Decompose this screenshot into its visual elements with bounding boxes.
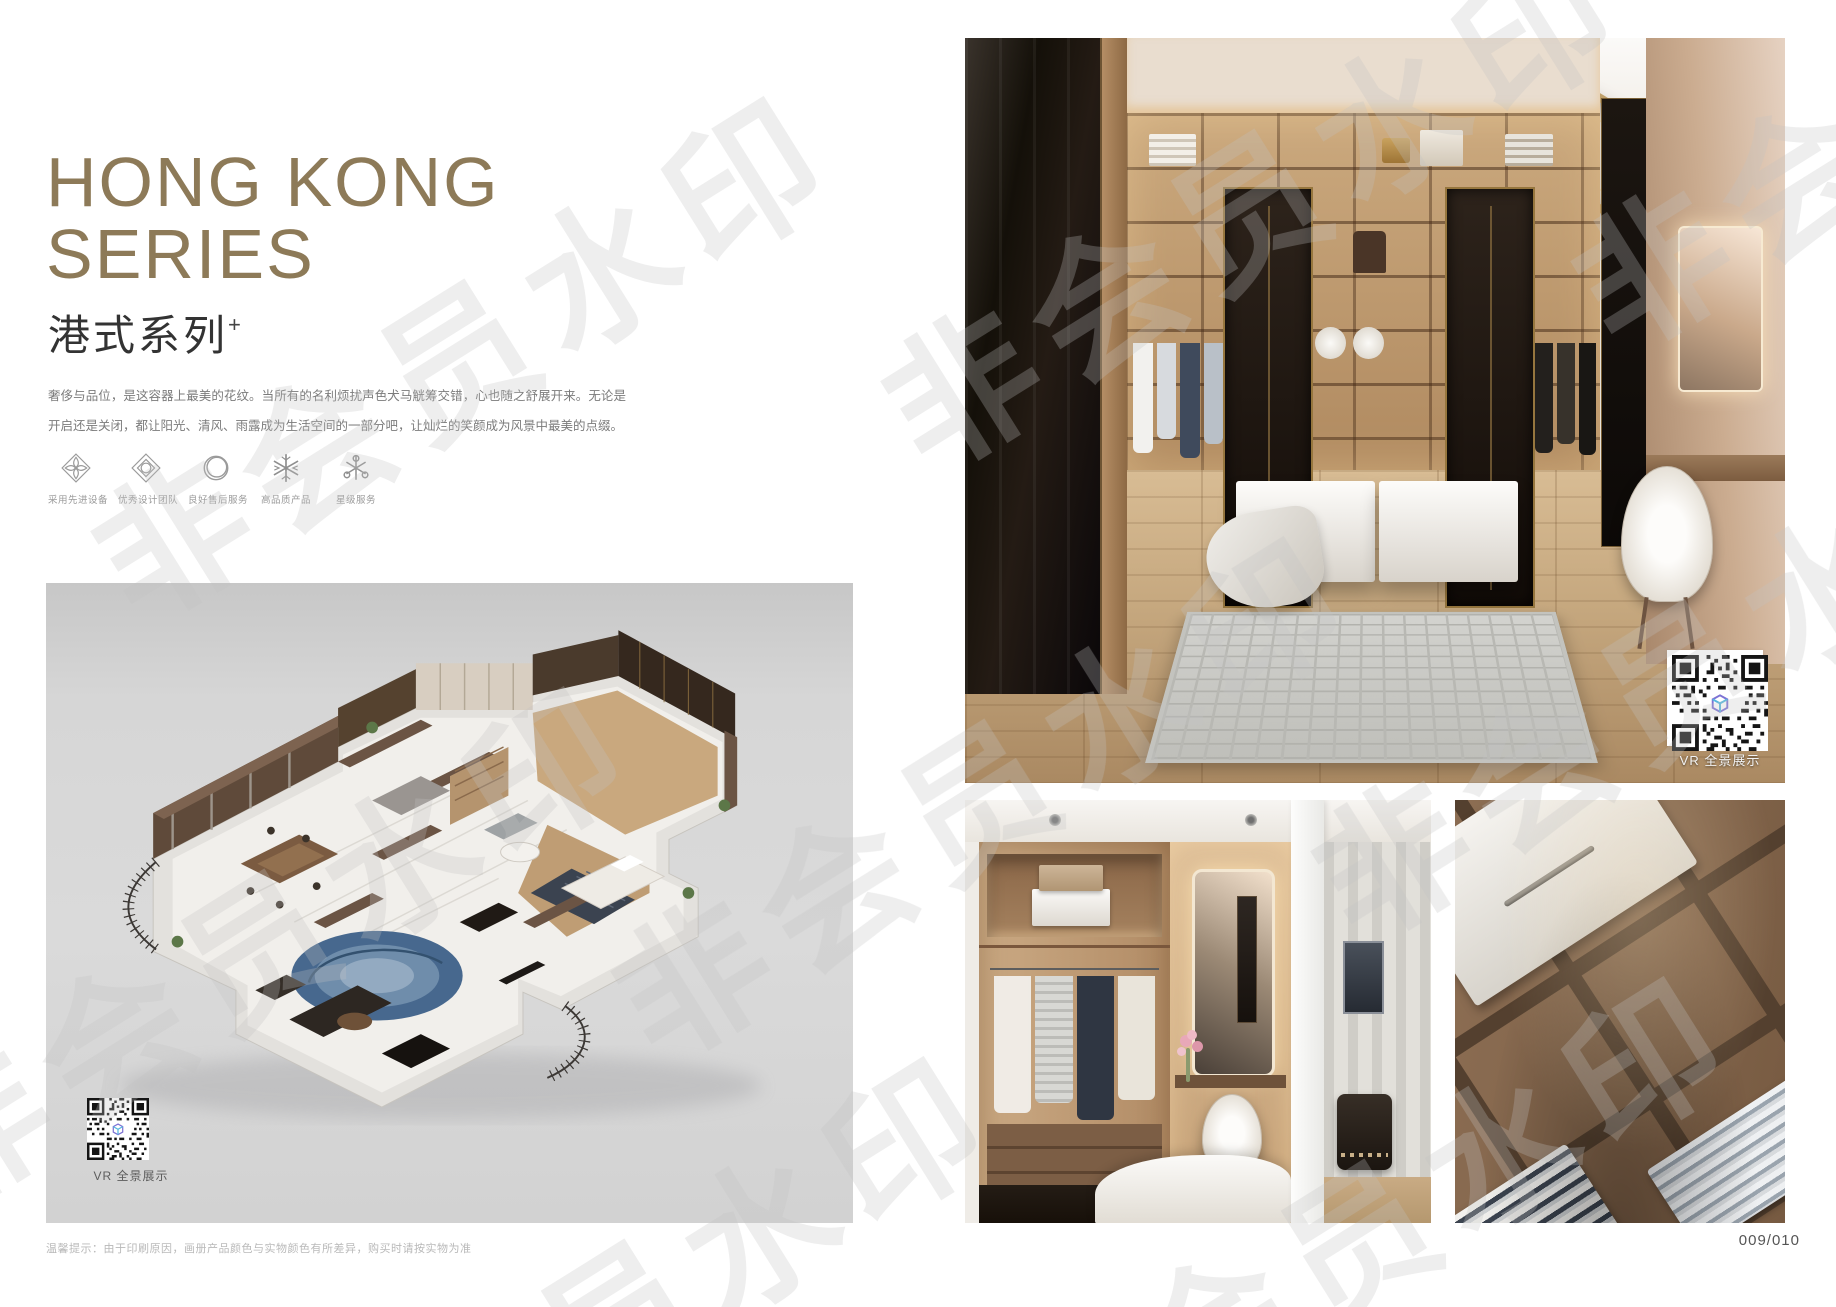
chair-back — [1621, 466, 1713, 602]
glass-door-wardrobe — [965, 38, 1102, 694]
feature-list: 采用先进设备 优秀设计团队 良好售后服务 高品质产品 — [48, 452, 388, 506]
hanging-clothes — [994, 976, 1154, 1121]
soffit-light — [1125, 38, 1601, 113]
storage-box — [1039, 865, 1102, 890]
vanity-mirror — [1678, 226, 1763, 393]
page-title: HONG KONG SERIES — [46, 146, 500, 290]
feature-label: 良好售后服务 — [188, 492, 244, 506]
photo-qr-code — [1667, 650, 1763, 746]
hanging-clothes-dark — [1535, 343, 1597, 462]
flower-vase — [1168, 1029, 1209, 1086]
wall-art — [1343, 941, 1383, 1014]
feature-label: 星级服务 — [328, 492, 384, 506]
ornament-diamond-icon — [130, 452, 162, 484]
floorplan-vr-label: VR 全景展示 — [76, 1167, 186, 1184]
ring-icon — [200, 452, 232, 484]
folded-clothes-stack — [1149, 134, 1197, 166]
page-number: 009/010 — [1739, 1232, 1800, 1249]
wood-floor — [1324, 1177, 1431, 1223]
white-chair — [1621, 466, 1711, 652]
page-subtitle: 港式系列+ — [48, 302, 244, 363]
hat-box — [1353, 327, 1384, 359]
feature-label: 优秀设计团队 — [118, 492, 174, 506]
white-pillar — [1291, 800, 1324, 1223]
floorplan-panel: VR 全景展示 — [46, 583, 853, 1223]
hanging-rod — [990, 968, 1158, 970]
ottoman-bed — [1379, 481, 1518, 582]
feature-star-service: 星级服务 — [328, 452, 384, 506]
ceiling — [965, 800, 1431, 842]
spotlight — [1049, 814, 1061, 826]
feature-after-sales: 良好售后服务 — [188, 452, 244, 506]
series-description: 奢侈与品位，是这容器上最美的花纹。当所有的名利烦扰声色犬马觥筹交错，心也随之舒展… — [48, 381, 626, 441]
feature-quality: 高品质产品 — [258, 452, 314, 506]
chair-leg — [1684, 597, 1695, 649]
footer-disclaimer: 温馨提示：由于印刷原因，画册产品颜色与实物颜色有所差异，购买时请按实物为准 — [46, 1240, 472, 1256]
spotlight — [1245, 814, 1257, 826]
storage-box — [1032, 889, 1109, 926]
hanging-clothes-light — [1133, 343, 1223, 462]
main-closet-photo: VR 全景展示 — [965, 38, 1785, 783]
gold-decor-box — [1382, 138, 1411, 163]
feature-label: 高品质产品 — [258, 492, 314, 506]
dressing-area-photo — [965, 800, 1431, 1223]
wood-pillar — [1102, 38, 1127, 694]
adjacent-room-view — [1324, 842, 1431, 1223]
floorplan-qr-code — [84, 1095, 152, 1163]
catalog-page: HONG KONG SERIES 港式系列+ 奢侈与品位，是这容器上最美的花纹。… — [0, 0, 1836, 1307]
folded-clothes-stack — [1505, 134, 1553, 166]
feature-design-team: 优秀设计团队 — [118, 452, 174, 506]
chair-leg — [1637, 597, 1648, 649]
subtitle-text: 港式系列 — [48, 312, 228, 359]
stud-trim — [1341, 1153, 1388, 1157]
feature-label: 采用先进设备 — [48, 492, 104, 506]
title-line-1: HONG KONG — [46, 146, 500, 218]
subtitle-plus: + — [228, 312, 244, 337]
mirror-reflection — [1237, 896, 1256, 1023]
shelf-closeup-photo — [1455, 800, 1785, 1223]
feature-equipment: 采用先进设备 — [48, 452, 104, 506]
lighting-overlay — [1455, 800, 1785, 1223]
shelf-divider — [979, 945, 1170, 948]
top-shelf-recess — [987, 854, 1163, 938]
drum-side-cabinet — [1337, 1094, 1393, 1170]
area-rug — [1145, 612, 1598, 763]
photo-vr-label: VR 全景展示 — [1671, 750, 1769, 769]
title-line-2: SERIES — [46, 218, 500, 290]
ornament-flower-icon — [60, 452, 92, 484]
snowflake-icon — [270, 452, 302, 484]
star-service-icon — [340, 452, 372, 484]
hat-box — [1315, 327, 1346, 359]
leather-bag — [1353, 231, 1386, 274]
storage-box — [1420, 130, 1463, 166]
isometric-floorplan-render — [58, 601, 842, 1146]
